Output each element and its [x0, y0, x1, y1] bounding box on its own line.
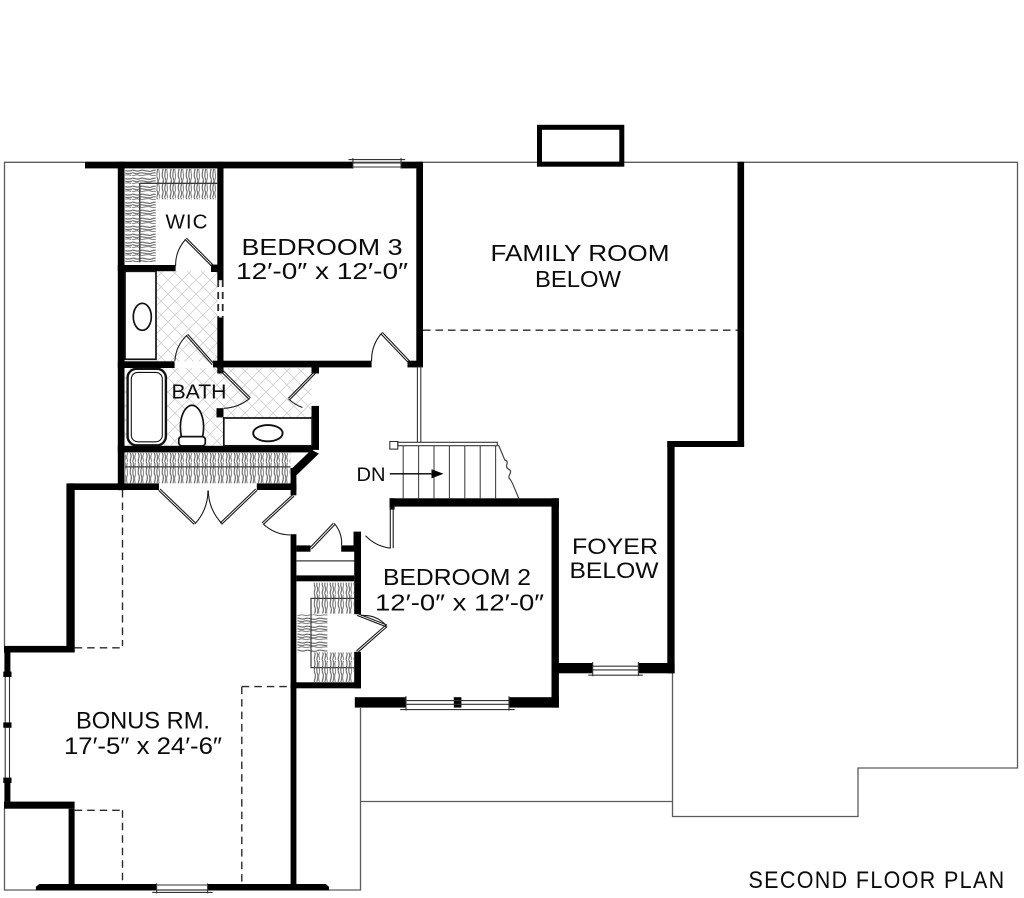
svg-text:17′-5″ x 24′-6″: 17′-5″ x 24′-6″	[64, 733, 223, 760]
svg-text:BATH: BATH	[172, 382, 227, 404]
svg-text:BELOW: BELOW	[570, 558, 659, 583]
svg-text:BEDROOM 3: BEDROOM 3	[242, 234, 403, 260]
svg-text:12′-0″ x 12′-0″: 12′-0″ x 12′-0″	[375, 590, 544, 616]
svg-text:SECOND FLOOR PLAN: SECOND FLOOR PLAN	[749, 867, 1006, 894]
svg-text:WIC: WIC	[166, 212, 209, 234]
svg-text:FAMILY ROOM: FAMILY ROOM	[491, 240, 670, 266]
svg-text:BEDROOM 2: BEDROOM 2	[383, 564, 531, 590]
svg-text:12′-0″ x 12′-0″: 12′-0″ x 12′-0″	[236, 258, 408, 284]
svg-text:FOYER: FOYER	[572, 534, 658, 559]
svg-text:BELOW: BELOW	[535, 266, 621, 292]
svg-text:DN: DN	[357, 465, 386, 486]
svg-text:BONUS RM.: BONUS RM.	[76, 708, 210, 735]
